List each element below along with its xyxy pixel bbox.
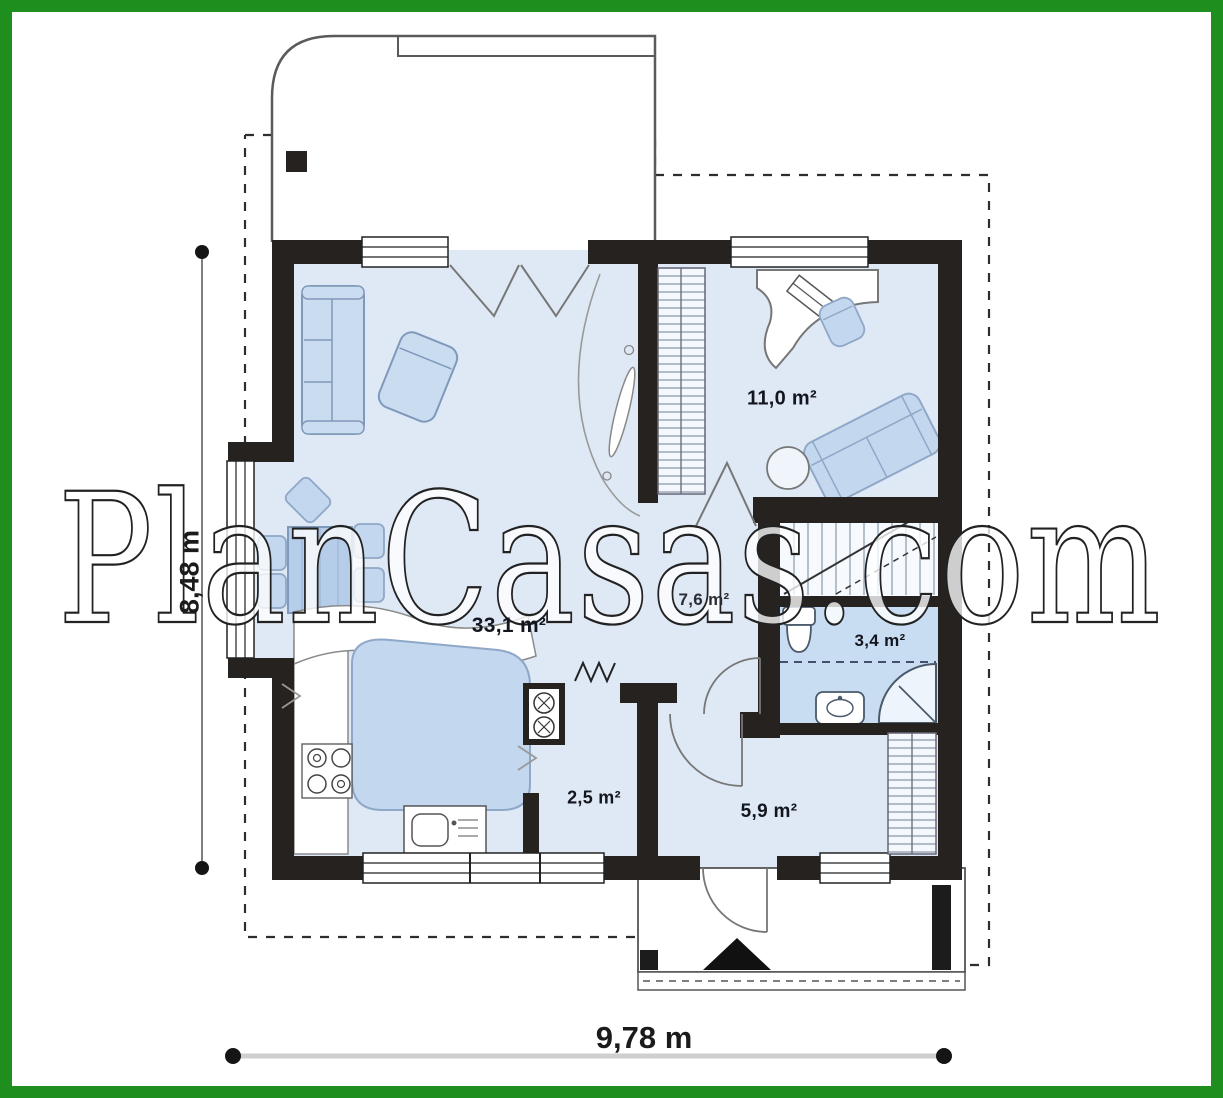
porch-pillar-left [640, 950, 658, 970]
watermark: PlanCasas.com [58, 456, 1163, 665]
room-label-entrance: 5,9 m² [741, 801, 798, 823]
window-office-top [731, 237, 868, 267]
terrace-pillar [286, 151, 307, 172]
stove-burners [302, 744, 352, 798]
dimension-height-label: 8,48 m [175, 530, 206, 614]
room-label-hall: 7,6 m² [679, 590, 730, 610]
kitchen-sink [404, 806, 486, 854]
room-label-pantry: 2,5 m² [567, 788, 621, 809]
kitchen-island [352, 640, 530, 811]
window-entrance-bottom [820, 853, 890, 883]
wardrobe-entrance [888, 733, 936, 854]
window-living-top [362, 237, 448, 267]
room-label-living: 33,1 m² [472, 614, 546, 638]
room-label-bathroom: 3,4 m² [855, 631, 906, 651]
room-label-office: 11,0 m² [747, 388, 817, 411]
porch-pillar-right [932, 885, 951, 970]
dimension-line-bottom [225, 1048, 952, 1064]
washbasin [816, 692, 864, 724]
floor-plan-page: PlanCasas.com 33,1 m² 11,0 m² 7,6 m² 3,4… [0, 0, 1223, 1098]
sofa [302, 286, 364, 434]
dimension-width-label: 9,78 m [596, 1020, 693, 1056]
terrace-outline [272, 36, 655, 242]
window-kitchen-bottom [363, 853, 604, 883]
solid-fuel-stove [523, 683, 565, 745]
entrance-porch [638, 868, 965, 990]
